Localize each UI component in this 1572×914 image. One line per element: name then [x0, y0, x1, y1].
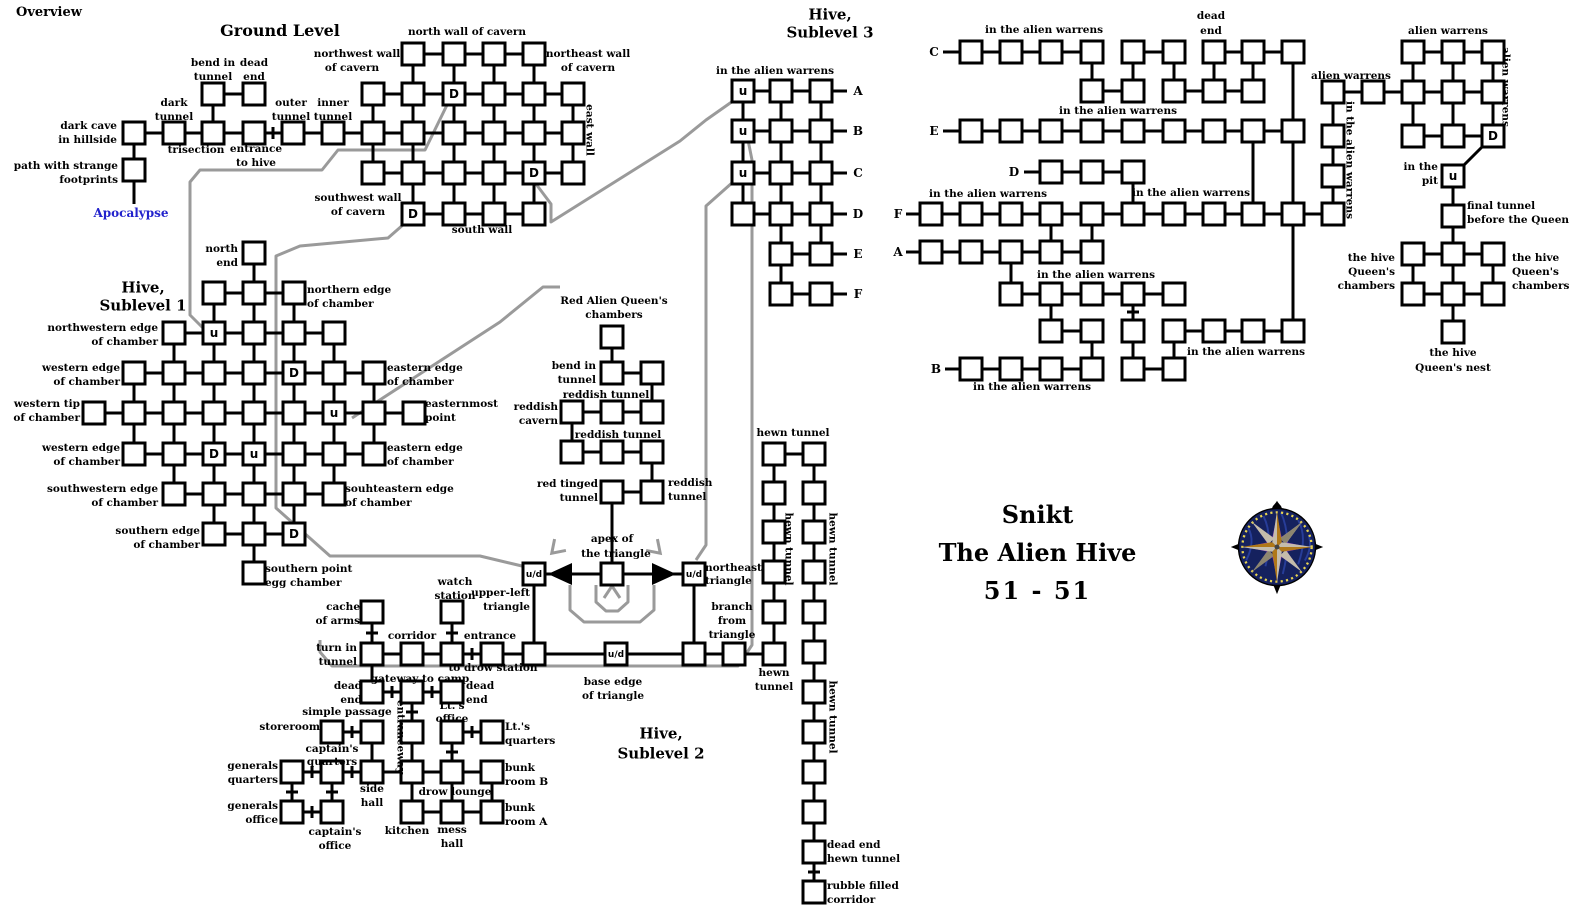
map-label: entrance: [230, 144, 282, 155]
map-label: in the alien warrens: [1059, 106, 1177, 117]
map-label: reddish tunnel: [563, 390, 650, 401]
map-room: [443, 203, 465, 225]
map-room: [770, 243, 792, 265]
map-label: triangle: [709, 630, 756, 641]
map-label: generals: [227, 801, 278, 812]
map-label: Apocalypse: [93, 207, 168, 219]
map-room: [1322, 81, 1344, 103]
map-room: [763, 643, 785, 665]
map-room: [401, 801, 423, 823]
map-room: [1402, 41, 1424, 63]
map-label: end: [243, 72, 265, 83]
room-exit-letter: D: [408, 207, 418, 221]
map-room: [362, 83, 384, 105]
map-room: [1000, 283, 1022, 305]
map-room: [1322, 125, 1344, 147]
map-label: tunnel: [755, 682, 793, 693]
map-room: [1040, 203, 1062, 225]
room-exit-letter: u: [739, 166, 748, 180]
map-label: E: [853, 248, 862, 260]
map-label: B: [853, 125, 863, 137]
overview-connection-line: [276, 224, 522, 566]
one-way-arrow-icon: [652, 563, 676, 585]
map-room: [1163, 203, 1185, 225]
map-label: reddish: [668, 478, 712, 489]
map-room: [1163, 120, 1185, 142]
map-room: [1362, 81, 1384, 103]
map-label: F: [854, 288, 863, 300]
map-room: [803, 521, 825, 543]
room-exit-letter: u: [1449, 169, 1458, 183]
map-label: in the: [1404, 162, 1438, 173]
map-label: quarters: [505, 736, 555, 747]
map-label: trisection: [168, 145, 225, 156]
map-label: Red Alien Queen's: [560, 296, 667, 307]
map-room: [163, 443, 185, 465]
map-room: [361, 761, 383, 783]
map-label: corridor: [388, 631, 436, 642]
room-exit-letter: D: [209, 447, 219, 461]
map-room: [282, 122, 304, 144]
map-room: [523, 122, 545, 144]
map-label: Queen's: [1348, 267, 1395, 278]
map-room: [810, 283, 832, 305]
map-label: D: [853, 208, 863, 220]
map-room: [1040, 320, 1062, 342]
map-room: [1040, 41, 1062, 63]
map-title-area: The Alien Hive: [880, 538, 1195, 567]
map-room: [1163, 41, 1185, 63]
map-label: eastern edge: [387, 363, 463, 374]
map-room: [323, 322, 345, 344]
map-room: [803, 881, 825, 903]
map-room: [203, 402, 225, 424]
map-room: [960, 241, 982, 263]
map-label: kitchen: [385, 826, 429, 837]
map-room: [803, 443, 825, 465]
map-label: egg chamber: [265, 578, 342, 589]
map-room: [1402, 283, 1424, 305]
mud-map-overview: DDDuDuDuDu/du/du/duuuDu Ground Levelnort…: [0, 0, 1572, 914]
map-label: dark: [161, 98, 188, 109]
map-label: gateway to camp: [371, 674, 469, 685]
map-label: south wall: [452, 225, 513, 236]
map-room: [1242, 120, 1264, 142]
map-room: [763, 443, 785, 465]
page-title: Overview: [16, 6, 82, 19]
map-room: [803, 561, 825, 583]
map-label: southwestern edge: [47, 484, 158, 495]
map-label: branch: [711, 602, 752, 613]
map-label: A: [893, 246, 902, 258]
map-room: [1122, 120, 1144, 142]
map-room: [243, 362, 265, 384]
map-room: [960, 41, 982, 63]
map-room: [402, 122, 424, 144]
map-room: [803, 721, 825, 743]
map-room: [1203, 80, 1225, 102]
map-room: [810, 162, 832, 184]
map-label: F: [894, 208, 903, 220]
map-label: easternmost: [425, 399, 498, 410]
map-label: rubble filled: [827, 881, 899, 892]
map-label: upper-left: [471, 588, 530, 599]
room-exit-letter: u: [330, 406, 339, 420]
map-label: of chamber: [13, 413, 80, 424]
map-label: end: [340, 695, 362, 706]
map-label: of chamber: [53, 457, 120, 468]
map-title: Snikt The Alien Hive 51 - 51: [880, 500, 1195, 605]
map-label: entranceway: [395, 700, 406, 774]
map-room: [601, 441, 623, 463]
map-room: [1282, 120, 1304, 142]
map-room: [1242, 80, 1264, 102]
map-room: [243, 483, 265, 505]
map-label: the triangle: [581, 549, 651, 560]
map-label: of triangle: [582, 691, 644, 702]
map-label: watch: [438, 577, 473, 588]
map-room: [683, 643, 705, 665]
map-room: [443, 122, 465, 144]
map-room: [483, 43, 505, 65]
map-room: [402, 162, 424, 184]
map-room: [1040, 241, 1062, 263]
map-label: bunk: [505, 803, 535, 814]
map-label: drow lounge: [419, 787, 492, 798]
map-label: footprints: [59, 175, 118, 186]
map-room: [601, 326, 623, 348]
map-label: of chamber: [91, 498, 158, 509]
map-label: tunnel: [668, 492, 706, 503]
map-room: [803, 681, 825, 703]
map-room: [803, 801, 825, 823]
map-room: [323, 443, 345, 465]
map-room: [601, 563, 623, 585]
map-label: of cavern: [325, 63, 379, 74]
map-room: [1163, 283, 1185, 305]
map-room: [1040, 120, 1062, 142]
map-room: [363, 443, 385, 465]
map-room: [1081, 120, 1103, 142]
map-room: [362, 122, 384, 144]
map-label: southern point: [265, 564, 352, 575]
map-room: [1122, 80, 1144, 102]
map-label: reddish: [514, 402, 558, 413]
map-title-zone: Snikt: [880, 500, 1195, 529]
map-room: [803, 482, 825, 504]
map-room: [123, 402, 145, 424]
map-room: [1000, 358, 1022, 380]
map-room: [562, 162, 584, 184]
map-room: [770, 80, 792, 102]
map-room: [323, 362, 345, 384]
map-room: [1040, 161, 1062, 183]
map-room: [481, 801, 503, 823]
map-label: hewn tunnel: [783, 512, 794, 585]
map-label: Lt.'s: [439, 701, 464, 712]
map-label: tunnel: [560, 493, 598, 504]
map-label: northwest wall: [314, 49, 401, 60]
map-room: [1081, 320, 1103, 342]
map-label: generals: [227, 761, 278, 772]
room-exit-letter: D: [289, 366, 299, 380]
map-label: in the alien warrens: [973, 382, 1091, 393]
map-room: [803, 641, 825, 663]
map-label: tunnel: [194, 72, 232, 83]
map-label: tunnel: [272, 112, 310, 123]
map-room: [483, 162, 505, 184]
overview-direction-arrow-icon: [546, 539, 566, 559]
map-room: [1081, 41, 1103, 63]
map-room: [770, 203, 792, 225]
map-label: base edge: [584, 677, 642, 688]
map-room: [403, 402, 425, 424]
map-room: [1122, 203, 1144, 225]
map-label: of chamber: [345, 498, 412, 509]
map-label: southern edge: [115, 526, 200, 537]
map-room: [1122, 161, 1144, 183]
map-room: [443, 43, 465, 65]
room-exit-letter: u/d: [526, 570, 542, 580]
map-label: the hive: [1429, 348, 1476, 359]
map-room: [1122, 41, 1144, 63]
map-room: [243, 122, 265, 144]
map-label: hewn: [759, 668, 790, 679]
map-room: [763, 482, 785, 504]
map-label: alien warrens: [1500, 47, 1511, 127]
room-exit-letter: D: [529, 166, 539, 180]
map-label: dead: [240, 58, 268, 69]
map-room: [1081, 80, 1103, 102]
map-label: tunnel: [155, 112, 193, 123]
map-label: in the alien warrens: [985, 25, 1103, 36]
map-label: bend in: [191, 58, 235, 69]
map-room: [243, 402, 265, 424]
map-room: [1040, 358, 1062, 380]
map-label: end: [216, 258, 238, 269]
map-room: [123, 362, 145, 384]
map-label: Hive,: [121, 281, 164, 296]
map-label: C: [853, 167, 863, 179]
map-room: [1442, 41, 1464, 63]
map-room: [770, 283, 792, 305]
map-label: storeroom: [259, 722, 320, 733]
map-room: [402, 83, 424, 105]
map-label: alien warrens: [1311, 71, 1391, 82]
map-label: north: [205, 244, 238, 255]
map-label: southwest wall: [315, 193, 402, 204]
map-label: office: [319, 841, 352, 852]
map-label: of chamber: [91, 337, 158, 348]
map-label: dead: [334, 681, 362, 692]
map-label: Hive,: [808, 8, 851, 23]
map-label: in the alien warrens: [1344, 101, 1355, 219]
map-room: [723, 643, 745, 665]
map-label: captain's: [309, 827, 362, 838]
map-label: alien warrens: [1408, 26, 1488, 37]
map-label: of arms: [315, 616, 360, 627]
map-label: simple passage: [302, 707, 391, 718]
map-room: [1163, 80, 1185, 102]
map-room: [163, 322, 185, 344]
map-room: [1000, 203, 1022, 225]
map-room: [1203, 41, 1225, 63]
map-room: [1282, 41, 1304, 63]
map-room: [123, 122, 145, 144]
map-label: final tunnel: [1467, 201, 1535, 212]
map-room: [203, 362, 225, 384]
map-room: [243, 562, 265, 584]
map-label: chambers: [585, 310, 642, 321]
map-room: [163, 362, 185, 384]
map-label: Queen's: [1512, 267, 1559, 278]
map-label: western tip: [14, 399, 80, 410]
map-room: [321, 801, 343, 823]
room-exit-letter: u/d: [608, 650, 624, 660]
map-title-levels: 51 - 51: [880, 576, 1195, 605]
room-exit-letter: u/d: [686, 570, 702, 580]
map-room: [441, 761, 463, 783]
map-label: pit: [1422, 176, 1438, 187]
room-exit-letter: u: [250, 447, 259, 461]
map-label: Ground Level: [220, 23, 340, 39]
overview-connection-line: [570, 585, 654, 622]
map-room: [1040, 283, 1062, 305]
map-label: chambers: [1512, 281, 1569, 292]
map-room: [810, 243, 832, 265]
map-label: of chamber: [387, 377, 454, 388]
map-label: east wall: [584, 104, 595, 156]
map-room: [1000, 41, 1022, 63]
map-room: [1081, 161, 1103, 183]
map-label: of cavern: [561, 63, 615, 74]
map-label: B: [931, 363, 941, 375]
map-label: in the alien warrens: [1037, 270, 1155, 281]
map-label: of chamber: [53, 377, 120, 388]
map-room: [243, 523, 265, 545]
map-label: the hive: [1348, 253, 1395, 264]
map-label: end: [466, 695, 488, 706]
map-label: station: [434, 591, 475, 602]
map-room: [1442, 243, 1464, 265]
map-label: western edge: [42, 443, 120, 454]
map-label: dead: [466, 681, 494, 692]
map-room: [770, 162, 792, 184]
map-label: dead: [1197, 11, 1225, 22]
map-label: triangle: [705, 576, 752, 587]
map-room: [283, 282, 305, 304]
map-room: [83, 402, 105, 424]
compass-rose-icon: [1228, 496, 1326, 602]
map-room: [1282, 203, 1304, 225]
map-label: side: [360, 784, 384, 795]
map-room: [641, 441, 663, 463]
map-label: E: [929, 125, 938, 137]
map-label: room B: [505, 777, 548, 788]
map-room: [562, 122, 584, 144]
room-exit-letter: u: [739, 84, 748, 98]
map-room: [1442, 81, 1464, 103]
map-label: D: [1009, 166, 1019, 178]
map-room: [1282, 320, 1304, 342]
map-room: [920, 241, 942, 263]
map-label: hall: [361, 798, 383, 809]
map-room: [283, 443, 305, 465]
map-label: northwestern edge: [47, 323, 158, 334]
map-room: [1442, 125, 1464, 147]
map-room: [920, 203, 942, 225]
map-room: [523, 203, 545, 225]
map-room: [361, 643, 383, 665]
map-room: [1322, 203, 1344, 225]
map-room: [243, 242, 265, 264]
map-label: of cavern: [331, 207, 385, 218]
map-room: [523, 43, 545, 65]
map-label: outer: [275, 98, 307, 109]
map-room: [202, 83, 224, 105]
map-room: [1122, 283, 1144, 305]
map-label: Sublevel 2: [617, 747, 704, 762]
map-room: [322, 122, 344, 144]
map-room: [810, 203, 832, 225]
map-room: [243, 282, 265, 304]
map-label: Lt.'s: [505, 722, 530, 733]
map-label: northern edge: [307, 285, 391, 296]
map-label: triangle: [483, 602, 530, 613]
map-room: [243, 322, 265, 344]
map-room: [803, 761, 825, 783]
map-room: [562, 83, 584, 105]
map-room: [123, 443, 145, 465]
map-room: [402, 43, 424, 65]
map-room: [363, 362, 385, 384]
map-label: point: [425, 413, 456, 424]
map-room: [281, 801, 303, 823]
map-room: [1442, 321, 1464, 343]
map-room: [481, 761, 503, 783]
map-room: [363, 402, 385, 424]
room-exit-letter: D: [289, 527, 299, 541]
map-label: chambers: [1338, 281, 1395, 292]
map-room: [323, 483, 345, 505]
map-room: [1442, 283, 1464, 305]
map-room: [1442, 205, 1464, 227]
map-label: cavern: [519, 416, 558, 427]
map-room: [483, 203, 505, 225]
map-label: reddish tunnel: [575, 430, 662, 441]
map-room: [1402, 125, 1424, 147]
map-room: [203, 282, 225, 304]
map-room: [960, 358, 982, 380]
map-room: [763, 601, 785, 623]
map-label: Hive,: [639, 727, 682, 742]
map-room: [202, 122, 224, 144]
map-label: in the alien warrens: [929, 189, 1047, 200]
map-room: [641, 401, 663, 423]
map-room: [1163, 358, 1185, 380]
map-room: [960, 203, 982, 225]
map-room: [283, 402, 305, 424]
map-label: the hive: [1512, 253, 1559, 264]
map-label: office: [436, 714, 469, 725]
map-label: from: [718, 616, 746, 627]
map-label: hewn tunnel: [827, 512, 838, 585]
map-label: inner: [317, 98, 348, 109]
map-room: [321, 721, 343, 743]
map-room: [123, 159, 145, 181]
map-room: [1203, 203, 1225, 225]
map-room: [1122, 358, 1144, 380]
